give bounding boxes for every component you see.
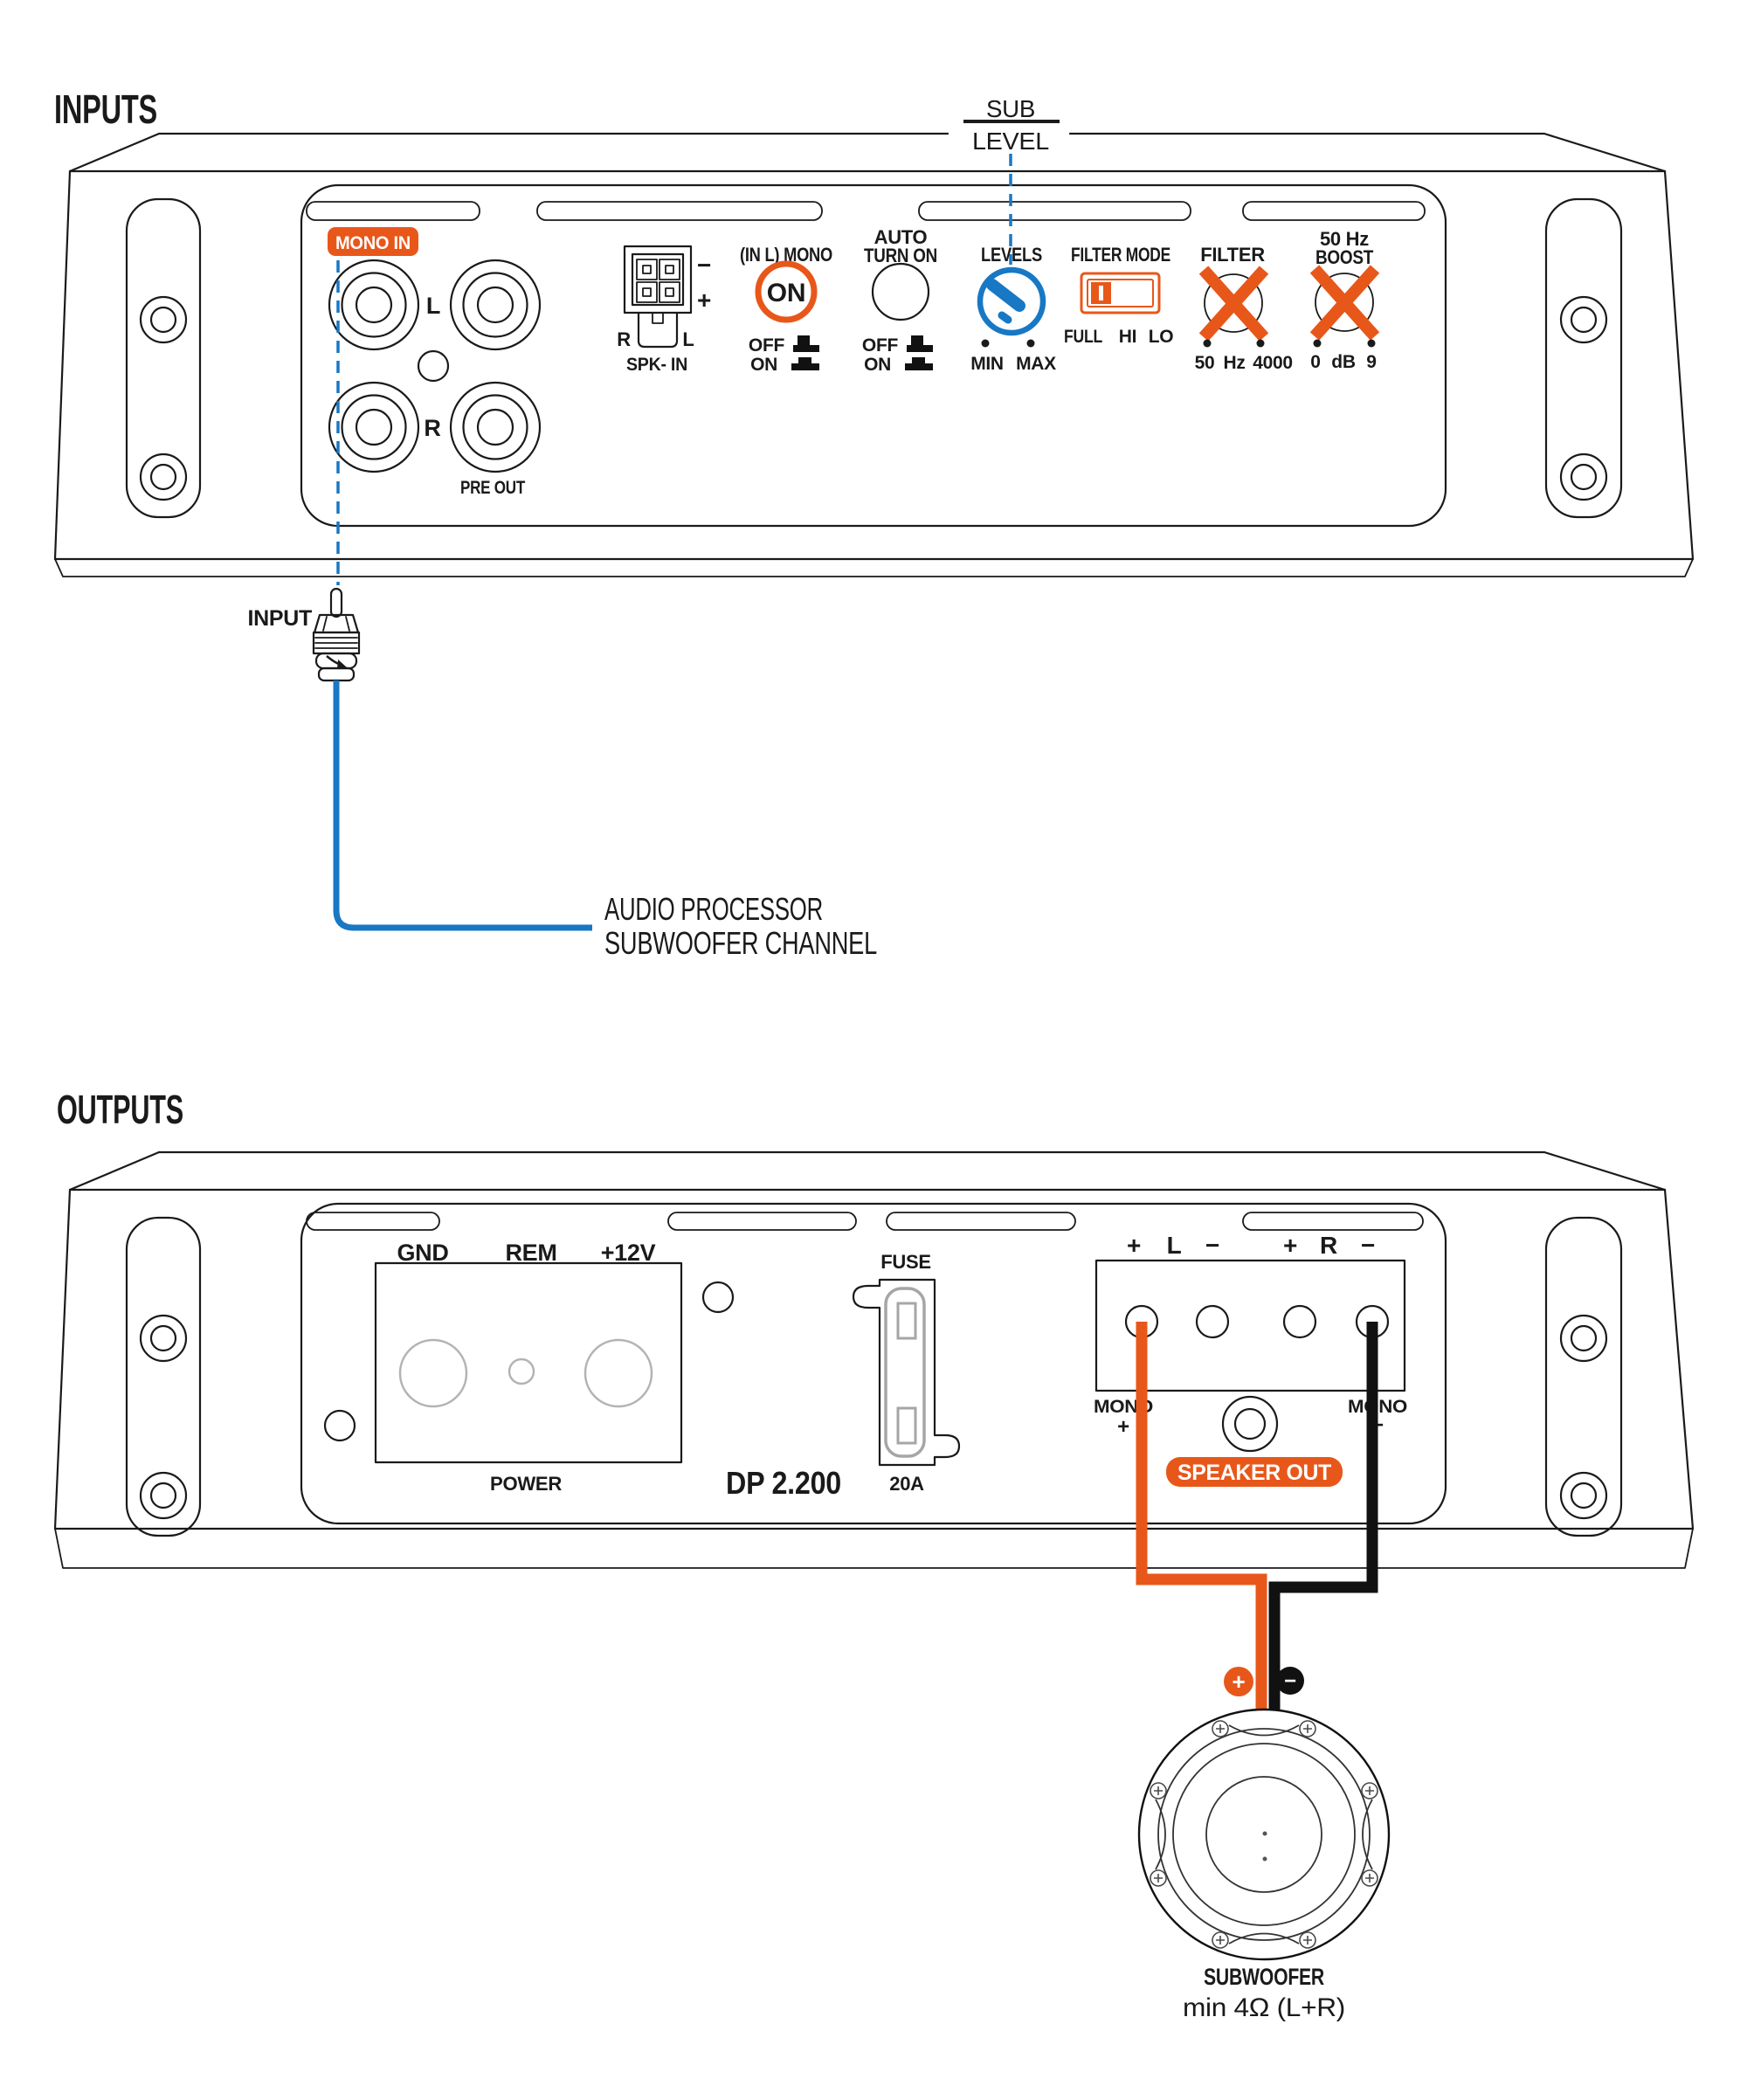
switch-position-on-icon [905,357,933,370]
input-label: INPUT [247,606,312,631]
processor-note-line-1: AUDIO PROCESSOR [604,891,823,927]
rem-terminal[interactable] [509,1359,534,1384]
fuse-rating-label: 20A [889,1473,924,1495]
r-label: R [1320,1232,1337,1259]
auto-turn-on-button[interactable] [873,264,929,320]
filter-mode-hi-label: HI [1119,327,1136,347]
auto-turn-on-switch: AUTO TURN ON OFF ON [862,226,937,375]
filter-mode-title: FILTER MODE [1071,244,1170,266]
switch-position-off-icon [793,335,819,352]
max-dot [1027,340,1035,348]
rca-jack-pre-out-l[interactable] [451,260,540,349]
mono-on-button-label: ON [767,279,805,307]
wiring-diagram: INPUTS SUB LEVEL MONO IN [0,0,1747,2100]
switch-position-on-icon [791,357,819,370]
rca-jack-mono-in-r[interactable] [329,383,418,472]
power-label: POWER [490,1473,562,1495]
filter-hi-dot [1257,340,1265,348]
panel-screw [1223,1397,1277,1451]
vent-slot [1243,1212,1423,1230]
vent-slot [919,202,1191,220]
panel-screw [1235,1409,1265,1439]
vent-slot [887,1212,1075,1230]
panel-screw [703,1282,733,1312]
switch-position-off-icon [907,335,933,352]
auto-off-label: OFF [862,335,899,356]
spk-in-l-label: L [682,328,694,350]
wire-minus-sign: − [1284,1669,1296,1693]
r-minus-label: − [1361,1232,1375,1259]
levels-min-label: MIN [970,354,1004,374]
plus12v-label: +12V [601,1240,656,1266]
filter-hi-label: 4000 [1253,353,1293,373]
l-label: L [1167,1232,1182,1259]
levels-control: LEVELS MIN MAX [970,154,1056,374]
filter-control: FILTER 50 Hz 4000 [1195,244,1293,373]
filter-unit-label: Hz [1223,353,1245,373]
pre-out-label: PRE OUT [460,478,525,498]
negative-speaker-wire [1274,1322,1372,1714]
l-minus-label: − [1205,1232,1219,1259]
input-rca-plug[interactable]: INPUT [247,589,359,680]
sub-level-bottom-label: LEVEL [972,128,1049,155]
subwoofer-drawing [1139,1710,1389,1959]
panel-screw [418,351,448,381]
boost-title-2: BOOST [1315,246,1374,268]
rca-left-row-label: L [426,293,440,319]
boost-lo-label: 0 [1310,352,1320,372]
spk-in-r-label: R [617,328,631,350]
mono-in-badge-label: MONO IN [335,233,411,253]
vent-slot [1243,202,1425,220]
r-plus-label: + [1283,1232,1297,1259]
vent-slot [668,1212,856,1230]
plus12v-terminal[interactable] [585,1340,652,1406]
sub-level-top-label: SUB [986,95,1035,122]
positive-speaker-wire [1142,1322,1261,1714]
levels-title: LEVELS [981,244,1042,266]
filter-disabled-x-icon [1204,270,1264,337]
boost-unit-label: dB [1331,352,1356,372]
spk-in-minus-label: − [697,252,711,279]
filter-lo-dot [1204,340,1212,348]
vent-slot [537,202,822,220]
filter-mode-lo-label: LO [1149,327,1174,347]
spk-in-connector[interactable]: − + R L SPK- IN [617,246,711,375]
speaker-out-badge: SPEAKER OUT [1166,1457,1343,1487]
terminal-r-plus[interactable] [1284,1306,1315,1337]
mono-off-label: OFF [749,335,785,356]
model-name: DP 2.200 [726,1465,841,1501]
mono-plus-sign: + [1117,1415,1129,1439]
auto-on-label: ON [864,355,891,375]
boost-control: 50 Hz BOOST 0 dB 9 [1310,228,1376,372]
mono-on-label: ON [750,355,777,375]
l-plus-label: + [1127,1232,1141,1259]
filter-mode-switch[interactable] [1081,273,1159,313]
rca-right-row-label: R [424,415,440,441]
in-l-mono-switch: (IN L) MONO ON OFF ON [740,244,832,375]
mono-in-badge: MONO IN [328,227,418,256]
processor-note-line-2: SUBWOOFER CHANNEL [604,925,877,961]
vent-slot [307,202,480,220]
power-terminal-block: GND REM +12V POWER [325,1240,733,1495]
processor-note: AUDIO PROCESSOR SUBWOOFER CHANNEL [604,891,877,961]
outputs-section-title: OUTPUTS [57,1087,183,1132]
inputs-section-title: INPUTS [54,86,157,132]
boost-hi-label: 9 [1366,352,1376,372]
outputs-amp-chassis [55,1152,1693,1568]
gnd-terminal[interactable] [400,1340,466,1406]
levels-knob[interactable] [980,270,1043,333]
vent-slot [307,1212,439,1230]
wire-minus-badge: − [1276,1667,1304,1695]
spk-in-label: SPK- IN [626,355,687,375]
rca-jack-pre-out-r[interactable] [451,383,540,472]
filter-mode-control: FILTER MODE FULL HI LO [1064,244,1173,347]
rca-jack-mono-in-l[interactable] [329,260,418,349]
filter-title: FILTER [1200,244,1265,266]
subwoofer-name: SUBWOOFER [1204,1964,1324,1990]
terminal-l-minus[interactable] [1197,1306,1228,1337]
fuse-holder[interactable]: FUSE 20A [853,1251,959,1495]
filter-mode-full-label: FULL [1064,327,1102,347]
wire-plus-badge: + [1224,1667,1253,1696]
spk-in-plus-label: + [697,287,711,314]
sub-level-callout: SUB LEVEL [963,95,1060,155]
panel-screw [325,1411,355,1440]
fuse-label: FUSE [880,1251,930,1273]
mono-on-button[interactable]: ON [758,264,814,320]
subwoofer-spec: min 4Ω (L+R) [1183,1993,1345,2022]
rem-label: REM [505,1240,556,1266]
gnd-label: GND [397,1240,448,1266]
levels-max-label: MAX [1016,354,1056,374]
boost-hi-dot [1368,340,1376,348]
wire-plus-sign: + [1233,1668,1246,1695]
min-dot [982,340,990,348]
rca-jacks: L R PRE OUT [329,260,540,498]
sub-level-divider [963,120,1060,123]
input-cable [336,680,592,928]
speaker-out-badge-label: SPEAKER OUT [1177,1461,1331,1485]
filter-lo-label: 50 [1195,353,1215,373]
boost-lo-dot [1314,340,1322,348]
boost-disabled-x-icon [1315,269,1375,336]
